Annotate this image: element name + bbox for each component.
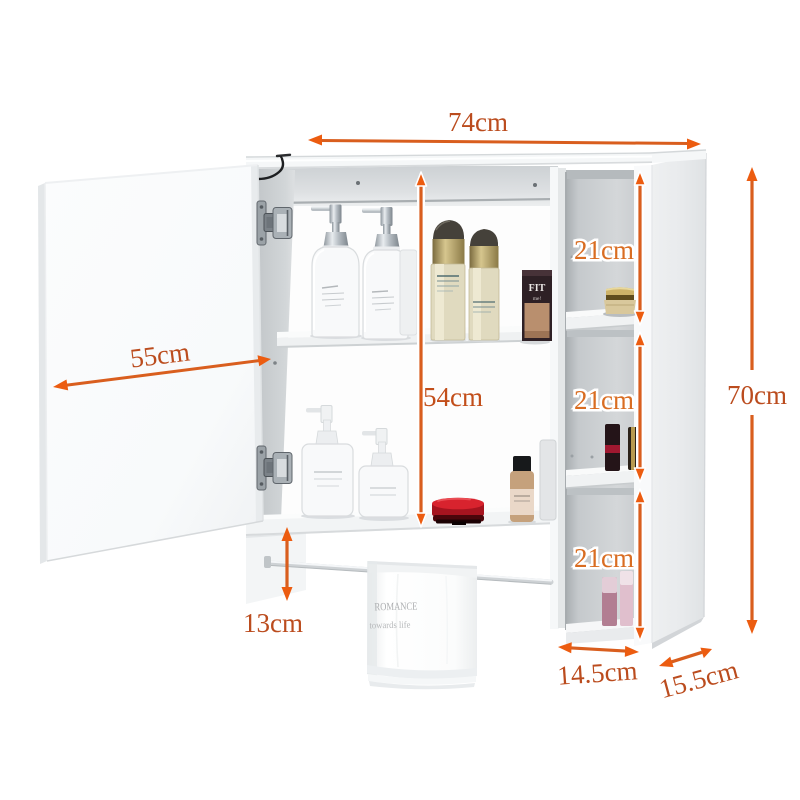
svg-text:74cm: 74cm xyxy=(448,107,508,137)
svg-text:FIT: FIT xyxy=(529,283,546,294)
svg-text:14.5cm: 14.5cm xyxy=(556,655,638,691)
svg-text:13cm: 13cm xyxy=(243,608,303,638)
svg-text:21cm: 21cm xyxy=(574,543,634,573)
svg-text:ROMANCE: ROMANCE xyxy=(374,601,417,614)
svg-text:70cm: 70cm xyxy=(727,380,787,410)
svg-text:towards life: towards life xyxy=(369,620,410,632)
svg-text:me!: me! xyxy=(533,296,542,302)
svg-text:21cm: 21cm xyxy=(574,235,634,265)
svg-text:54cm: 54cm xyxy=(423,382,483,412)
svg-text:21cm: 21cm xyxy=(574,385,634,415)
